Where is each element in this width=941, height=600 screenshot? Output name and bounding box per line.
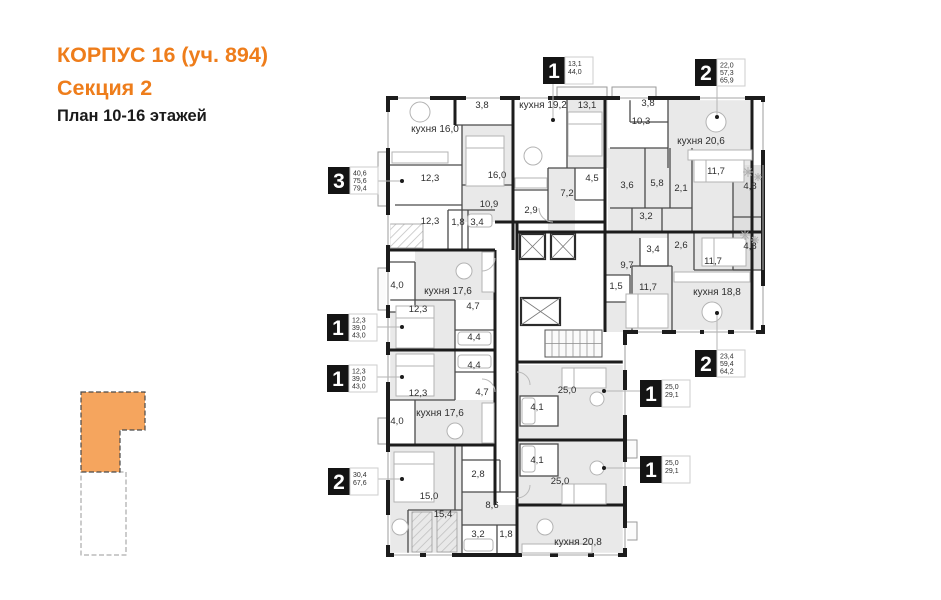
stairs	[545, 330, 602, 357]
badge-dot	[715, 311, 719, 315]
room-label: 2,1	[674, 183, 687, 194]
floor-plan: кухня 16,03,816,012,310,912,31,83,4кухня…	[0, 0, 941, 600]
badge-dot	[400, 477, 404, 481]
room-label: 4,8	[743, 181, 756, 192]
badge-rooms-count: 2	[333, 471, 345, 494]
room-label: 10,9	[480, 199, 499, 210]
room-label: 12,3	[421, 173, 440, 184]
minimap-highlighted-section	[81, 392, 145, 472]
badge-dot	[715, 115, 719, 119]
room-label: 3,6	[620, 180, 633, 191]
room-label: 4,7	[466, 301, 479, 312]
badge-area-value: 57,3	[720, 70, 734, 77]
minimap-other-section	[81, 472, 126, 555]
badge-rooms-count: 2	[700, 62, 712, 85]
badge-rooms-count: 2	[700, 353, 712, 376]
room-label: 15,0	[420, 491, 439, 502]
room-label: 3,4	[646, 244, 659, 255]
room-label: 1,8	[499, 529, 512, 540]
badge-area-value: 43,0	[352, 384, 366, 391]
badge-rooms-count: 3	[333, 170, 345, 193]
badge-area-value: 13,1	[568, 61, 582, 68]
room-label: 13,1	[578, 100, 597, 111]
badge-rooms-count: 1	[332, 368, 344, 391]
room-label: 4,5	[585, 173, 598, 184]
room-label: 3,2	[639, 211, 652, 222]
badge-rooms-count: 1	[548, 60, 560, 83]
room-label: 11,7	[707, 166, 725, 177]
badge-area-value: 39,0	[352, 325, 366, 332]
badge-area-value: 79,4	[353, 186, 367, 193]
badge-area-value: 23,4	[720, 354, 734, 361]
badge-dot	[551, 118, 555, 122]
badge-rooms-count: 1	[332, 317, 344, 340]
room-label: 4,1	[530, 455, 543, 466]
badge-area-value: 44,0	[568, 69, 582, 76]
badge-area-value: 40,6	[353, 171, 367, 178]
badge-area-value: 59,4	[720, 361, 734, 368]
badge-area-value: 75,6	[353, 178, 367, 185]
room-label: кухня 20,8	[554, 537, 602, 548]
badge-area-value: 65,9	[720, 78, 734, 85]
room-label: 12,3	[409, 388, 428, 399]
room-label: 3,4	[470, 217, 483, 228]
badge-area-value: 12,3	[352, 318, 366, 325]
room-label: 3,2	[471, 529, 484, 540]
badge-dot	[602, 389, 606, 393]
badge-area-value: 25,0	[665, 384, 679, 391]
badge-dot	[400, 325, 404, 329]
badge-rooms-count: 1	[645, 383, 657, 406]
badge-area-value: 30,4	[353, 472, 367, 479]
room-label: 2,9	[524, 205, 537, 216]
room-label: 25,0	[551, 476, 570, 487]
badge-rooms-count: 1	[645, 459, 657, 482]
badge-area-value: 67,6	[353, 480, 367, 487]
room-label: 2,8	[471, 469, 484, 480]
room-label: 4,7	[475, 387, 488, 398]
room-label: 5,8	[650, 178, 663, 189]
badge-area-value: 39,0	[352, 376, 366, 383]
room-label: 1,5	[609, 281, 622, 292]
room-label: 10,3	[632, 116, 651, 127]
badge-area-value: 64,2	[720, 369, 734, 376]
badge-area-value: 25,0	[665, 460, 679, 467]
room-label: 9,7	[620, 260, 633, 271]
room-label: 4,0	[390, 280, 403, 291]
badge-dot	[400, 179, 404, 183]
badge-area-value: 29,1	[665, 468, 679, 475]
room-label: 3,8	[641, 98, 654, 109]
room-label: 4,1	[530, 402, 543, 413]
room-label: 1,8	[451, 217, 464, 228]
room-label: 3,8	[475, 100, 488, 111]
room-label: 7,2	[560, 188, 573, 199]
room-label: кухня 18,8	[693, 287, 741, 298]
room-label: кухня 17,6	[416, 408, 464, 419]
room-label: 12,3	[409, 304, 428, 315]
room-label: 12,3	[421, 216, 440, 227]
floor-plan-page: КОРПУС 16 (уч. 894) Секция 2 План 10-16 …	[0, 0, 941, 600]
room-label: кухня 16,0	[411, 124, 459, 135]
room-label: 2,6	[674, 240, 687, 251]
badge-dot	[400, 375, 404, 379]
badge-area-value: 43,0	[352, 333, 366, 340]
apartment-badge[interactable]: 340,675,679,4	[328, 167, 404, 194]
room-label: 25,0	[558, 385, 577, 396]
badge-dot	[602, 466, 606, 470]
room-label: 4,4	[467, 332, 480, 343]
room-label: 11,7	[704, 256, 722, 267]
room-label: 15,4	[434, 509, 453, 520]
site-plan-minimap	[81, 392, 145, 555]
room-label: кухня 20,6	[677, 136, 725, 147]
badge-area-value: 29,1	[665, 392, 679, 399]
room-label: 16,0	[488, 170, 507, 181]
room-label: 4,8	[743, 241, 756, 252]
room-label: 11,7	[639, 282, 657, 293]
room-label: кухня 19,2	[519, 100, 567, 111]
room-label: 8,6	[485, 500, 498, 511]
room-label: 4,0	[390, 416, 403, 427]
room-label: кухня 17,6	[424, 286, 472, 297]
room-label: 4,4	[467, 360, 480, 371]
badge-area-value: 12,3	[352, 369, 366, 376]
badge-area-value: 22,0	[720, 63, 734, 70]
